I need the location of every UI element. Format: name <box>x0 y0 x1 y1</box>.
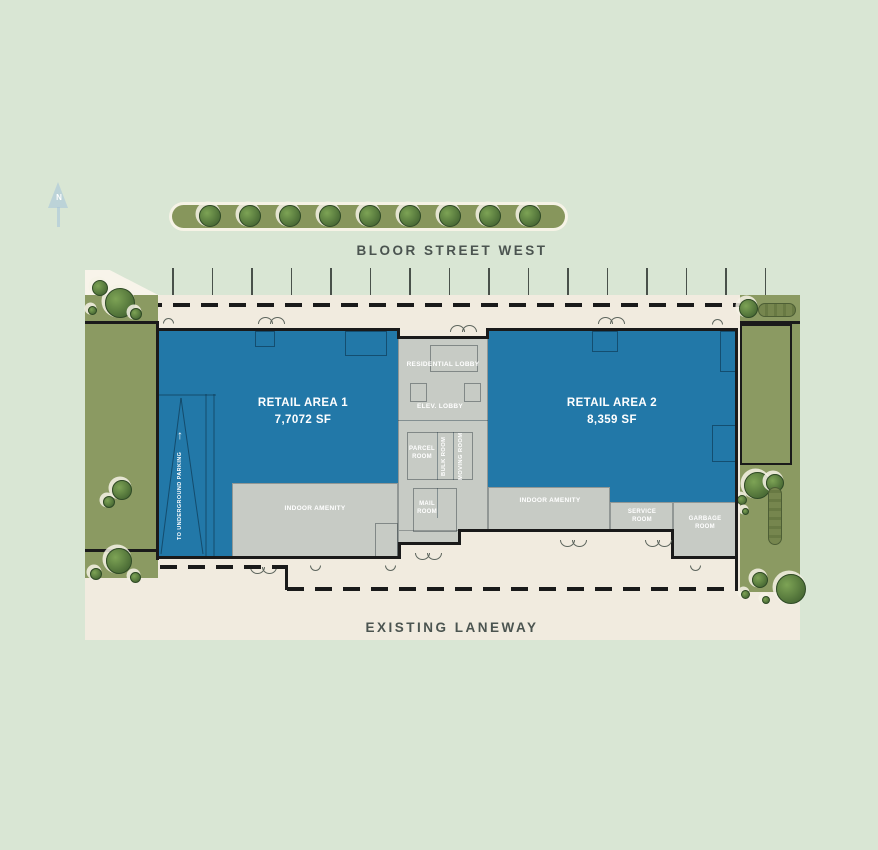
tree-icon <box>199 205 221 227</box>
retail2-notch <box>712 425 736 462</box>
parking-tick <box>251 268 253 295</box>
parcel-room-label: PARCEL ROOM <box>407 446 437 462</box>
north-arrow-letter: N <box>54 193 64 202</box>
tree-icon <box>739 299 758 318</box>
street-label-laneway: EXISTING LANEWAY <box>302 620 602 635</box>
retail-area-2-label: RETAIL AREA 2 8,359 SF <box>527 395 697 428</box>
retail-area-1-label: RETAIL AREA 1 7,7072 SF <box>218 395 388 428</box>
indoor-amenity-right-block <box>488 487 610 531</box>
parking-tick <box>567 268 569 295</box>
tree-icon <box>112 480 132 500</box>
wall-bottom-mail <box>398 542 461 545</box>
tree-icon <box>319 205 341 227</box>
tree-icon <box>776 574 806 604</box>
indoor-amenity-right-label: INDOOR AMENITY <box>510 497 590 505</box>
tree-icon <box>737 495 747 505</box>
retail-area-2-sf: 8,359 SF <box>527 412 697 429</box>
ramp-arrow-icon: ↑ <box>172 428 188 442</box>
parking-tick <box>449 268 451 295</box>
elev-lobby-label: ELEV. LOBBY <box>395 403 485 411</box>
tree-icon <box>742 508 749 515</box>
tree-icon <box>752 572 768 588</box>
retail2-column <box>720 331 736 372</box>
service-room-label: SERVICE ROOM <box>618 509 666 525</box>
wall-top-a <box>156 328 400 331</box>
landscape-right-court <box>740 324 792 465</box>
property-line-jog <box>735 559 738 590</box>
tree-icon <box>239 205 261 227</box>
hedge-icon <box>768 487 782 545</box>
tree-icon <box>439 205 461 227</box>
wall-jog <box>671 529 674 559</box>
indoor-amenity-left-block <box>232 483 398 558</box>
retail-area-1-name: RETAIL AREA 1 <box>218 395 388 412</box>
wall-bottom-garbage <box>671 556 738 559</box>
tree-icon <box>92 280 108 296</box>
parking-tick <box>409 268 411 295</box>
tree-icon <box>103 496 115 508</box>
tree-icon <box>519 205 541 227</box>
parking-tick <box>607 268 609 295</box>
retail2-vestibule <box>592 331 618 352</box>
indoor-amenity-left-label: INDOOR AMENITY <box>275 505 355 513</box>
retail-area-1-sf: 7,7072 SF <box>218 412 388 429</box>
retail1-column <box>255 331 275 347</box>
wall-lobby-recess <box>397 336 489 339</box>
tree-icon <box>741 590 750 599</box>
elevator-shaft <box>410 383 427 402</box>
parking-tick <box>765 268 767 295</box>
mail-room-label: MAIL ROOM <box>409 501 445 517</box>
retail1-vestibule <box>345 331 387 356</box>
parking-tick <box>725 268 727 295</box>
tree-icon <box>130 308 142 320</box>
site-plan: N BLOOR STREET WEST <box>0 0 878 850</box>
wall-bottom-a <box>156 556 401 559</box>
wall-bottom-b <box>458 529 674 532</box>
north-arrow-icon: N <box>48 182 70 230</box>
wall-right <box>735 328 738 559</box>
garbage-room-label: GARBAGE ROOM <box>681 516 729 532</box>
property-line-laneway-right <box>287 587 738 591</box>
ramp-label: TO UNDERGROUND PARKING <box>162 442 198 550</box>
tree-icon <box>90 568 102 580</box>
parking-ticks <box>172 268 766 295</box>
tree-icon <box>359 205 381 227</box>
property-line-top <box>145 303 740 307</box>
wall-jog <box>398 543 401 559</box>
core-partition <box>398 420 488 421</box>
retail-area-2-name: RETAIL AREA 2 <box>527 395 697 412</box>
parking-tick <box>212 268 214 295</box>
tree-icon <box>479 205 501 227</box>
tree-icon <box>130 572 141 583</box>
north-arrow-stem <box>57 207 60 227</box>
parking-tick <box>291 268 293 295</box>
residential-lobby-label: RESIDENTIAL LOBBY <box>403 361 483 369</box>
property-line-laneway-left <box>160 565 288 569</box>
parking-tick <box>646 268 648 295</box>
tree-icon <box>762 596 770 604</box>
parking-tick <box>172 268 174 295</box>
bulk-room-label: BULK ROOM <box>437 434 451 479</box>
tree-icon <box>88 306 97 315</box>
median-trees <box>199 205 541 227</box>
parking-tick <box>528 268 530 295</box>
parking-tick <box>686 268 688 295</box>
parcel-line <box>85 321 158 324</box>
landscape-left <box>85 295 158 578</box>
tree-icon <box>106 548 132 574</box>
moving-room-label: MOVING ROOM <box>453 434 469 479</box>
parking-tick <box>370 268 372 295</box>
elevator-shaft <box>464 383 481 402</box>
parking-tick <box>330 268 332 295</box>
wall-top-b <box>486 328 738 331</box>
tree-icon <box>399 205 421 227</box>
amenity-detail <box>375 523 398 557</box>
hedge-icon <box>758 303 796 317</box>
street-label-bloor: BLOOR STREET WEST <box>302 243 602 258</box>
tree-icon <box>279 205 301 227</box>
wall-left <box>156 321 159 560</box>
parking-tick <box>488 268 490 295</box>
